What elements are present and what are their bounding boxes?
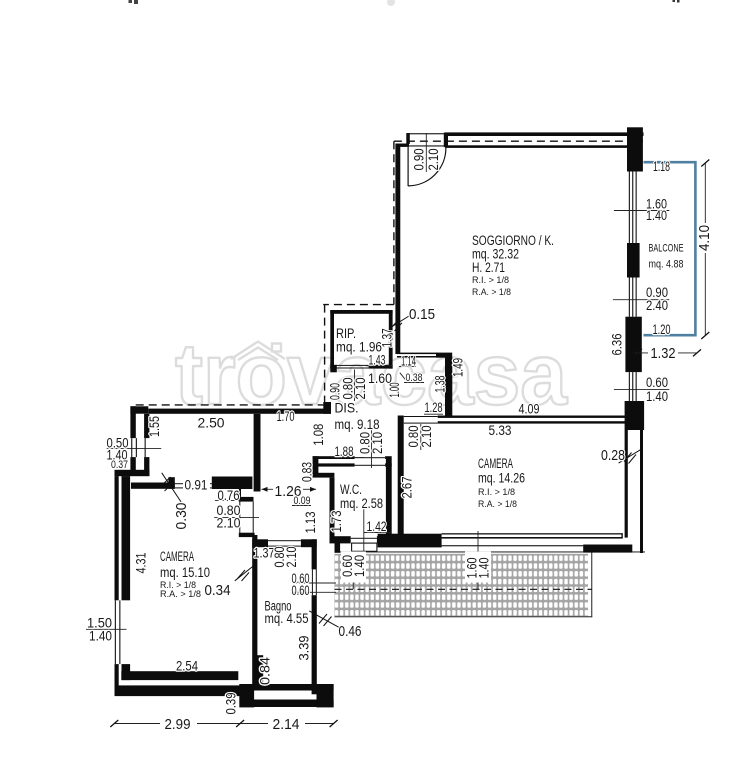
- svg-text:0.46: 0.46: [339, 623, 362, 640]
- svg-text:2.10: 2.10: [284, 547, 299, 568]
- svg-text:0.39: 0.39: [224, 693, 239, 715]
- svg-text:0.91: 0.91: [185, 478, 208, 493]
- svg-text:R.A. > 1/8: R.A. > 1/8: [160, 589, 201, 600]
- svg-text:1.40: 1.40: [352, 555, 367, 577]
- svg-text:4.10: 4.10: [696, 225, 713, 251]
- svg-text:2.10: 2.10: [419, 426, 434, 448]
- svg-text:2.54: 2.54: [176, 659, 198, 674]
- svg-text:3.39: 3.39: [297, 636, 312, 661]
- svg-text:1.13: 1.13: [303, 512, 318, 534]
- svg-text:1.28: 1.28: [425, 400, 443, 415]
- svg-text:1.32: 1.32: [651, 345, 676, 362]
- svg-text:1.70: 1.70: [277, 409, 295, 424]
- svg-text:1.37: 1.37: [380, 329, 395, 348]
- svg-text:6.36: 6.36: [610, 334, 625, 356]
- svg-text:0.28: 0.28: [601, 447, 625, 464]
- svg-text:BALCONE: BALCONE: [649, 243, 684, 255]
- svg-text:0.09: 0.09: [294, 495, 311, 507]
- svg-text:0.76: 0.76: [218, 488, 240, 503]
- svg-text:4.09: 4.09: [519, 402, 540, 417]
- svg-text:5.33: 5.33: [489, 423, 512, 438]
- svg-text:1.20: 1.20: [653, 322, 671, 337]
- svg-text:0.60: 0.60: [646, 375, 668, 390]
- svg-text:0.15: 0.15: [409, 306, 435, 323]
- svg-text:0.38: 0.38: [406, 372, 423, 384]
- svg-text:1.88: 1.88: [335, 444, 354, 459]
- svg-text:R.I. > 1/8: R.I. > 1/8: [478, 487, 515, 498]
- svg-text:1.00: 1.00: [387, 383, 402, 398]
- svg-text:R.I. > 1/8: R.I. > 1/8: [472, 275, 509, 286]
- svg-text:0.90: 0.90: [412, 149, 427, 171]
- svg-text:mq. 14.26: mq. 14.26: [478, 471, 525, 486]
- svg-text:R.A. > 1/8: R.A. > 1/8: [472, 287, 511, 298]
- svg-text:1.43: 1.43: [369, 353, 386, 368]
- svg-text:1.42: 1.42: [367, 519, 387, 534]
- svg-text:2.67: 2.67: [400, 477, 415, 499]
- svg-text:1.40: 1.40: [89, 629, 112, 644]
- svg-text:0.30: 0.30: [173, 503, 190, 530]
- svg-text:0.34: 0.34: [205, 582, 231, 599]
- svg-text:CAMERA: CAMERA: [478, 456, 513, 471]
- svg-text:2.10: 2.10: [370, 432, 385, 454]
- svg-text:2.50: 2.50: [198, 416, 225, 431]
- svg-text:1.40: 1.40: [477, 558, 492, 579]
- svg-text:1.73: 1.73: [329, 511, 344, 533]
- svg-text:R.A. > 1/8: R.A. > 1/8: [478, 499, 517, 510]
- svg-text:W.C.: W.C.: [340, 482, 362, 497]
- svg-text:mq. 9.18: mq. 9.18: [335, 417, 380, 432]
- svg-text:0.37: 0.37: [111, 459, 128, 471]
- svg-text:1.14: 1.14: [401, 354, 416, 369]
- svg-text:0.60: 0.60: [292, 583, 310, 598]
- svg-text:CAMERA: CAMERA: [160, 549, 194, 564]
- svg-text:0.83: 0.83: [300, 462, 315, 482]
- svg-text:2.10: 2.10: [353, 378, 368, 400]
- svg-text:mq. 4.88: mq. 4.88: [649, 259, 684, 271]
- svg-text:1.49: 1.49: [451, 358, 466, 377]
- svg-text:2.40: 2.40: [646, 298, 668, 313]
- svg-text:1.38: 1.38: [433, 376, 448, 393]
- svg-text:1.40: 1.40: [646, 208, 667, 223]
- svg-text:0.84: 0.84: [258, 656, 273, 685]
- svg-text:mq. 2.58: mq. 2.58: [340, 496, 383, 511]
- svg-text:4.31: 4.31: [134, 553, 149, 574]
- svg-text:mq. 4.55: mq. 4.55: [265, 611, 309, 626]
- svg-text:2.14: 2.14: [273, 716, 300, 733]
- svg-text:DIS.: DIS.: [335, 401, 359, 416]
- svg-text:2.10: 2.10: [217, 516, 241, 531]
- svg-text:0.90: 0.90: [328, 383, 343, 400]
- svg-text:mq. 15.10: mq. 15.10: [160, 565, 210, 580]
- svg-text:H. 2.71: H. 2.71: [472, 260, 505, 275]
- svg-text:1.55: 1.55: [147, 416, 162, 437]
- svg-text:1.18: 1.18: [653, 159, 670, 174]
- svg-text:2.10: 2.10: [426, 149, 441, 171]
- svg-text:2.99: 2.99: [165, 716, 191, 733]
- svg-text:1.40: 1.40: [646, 389, 668, 404]
- svg-text:1.08: 1.08: [311, 424, 326, 446]
